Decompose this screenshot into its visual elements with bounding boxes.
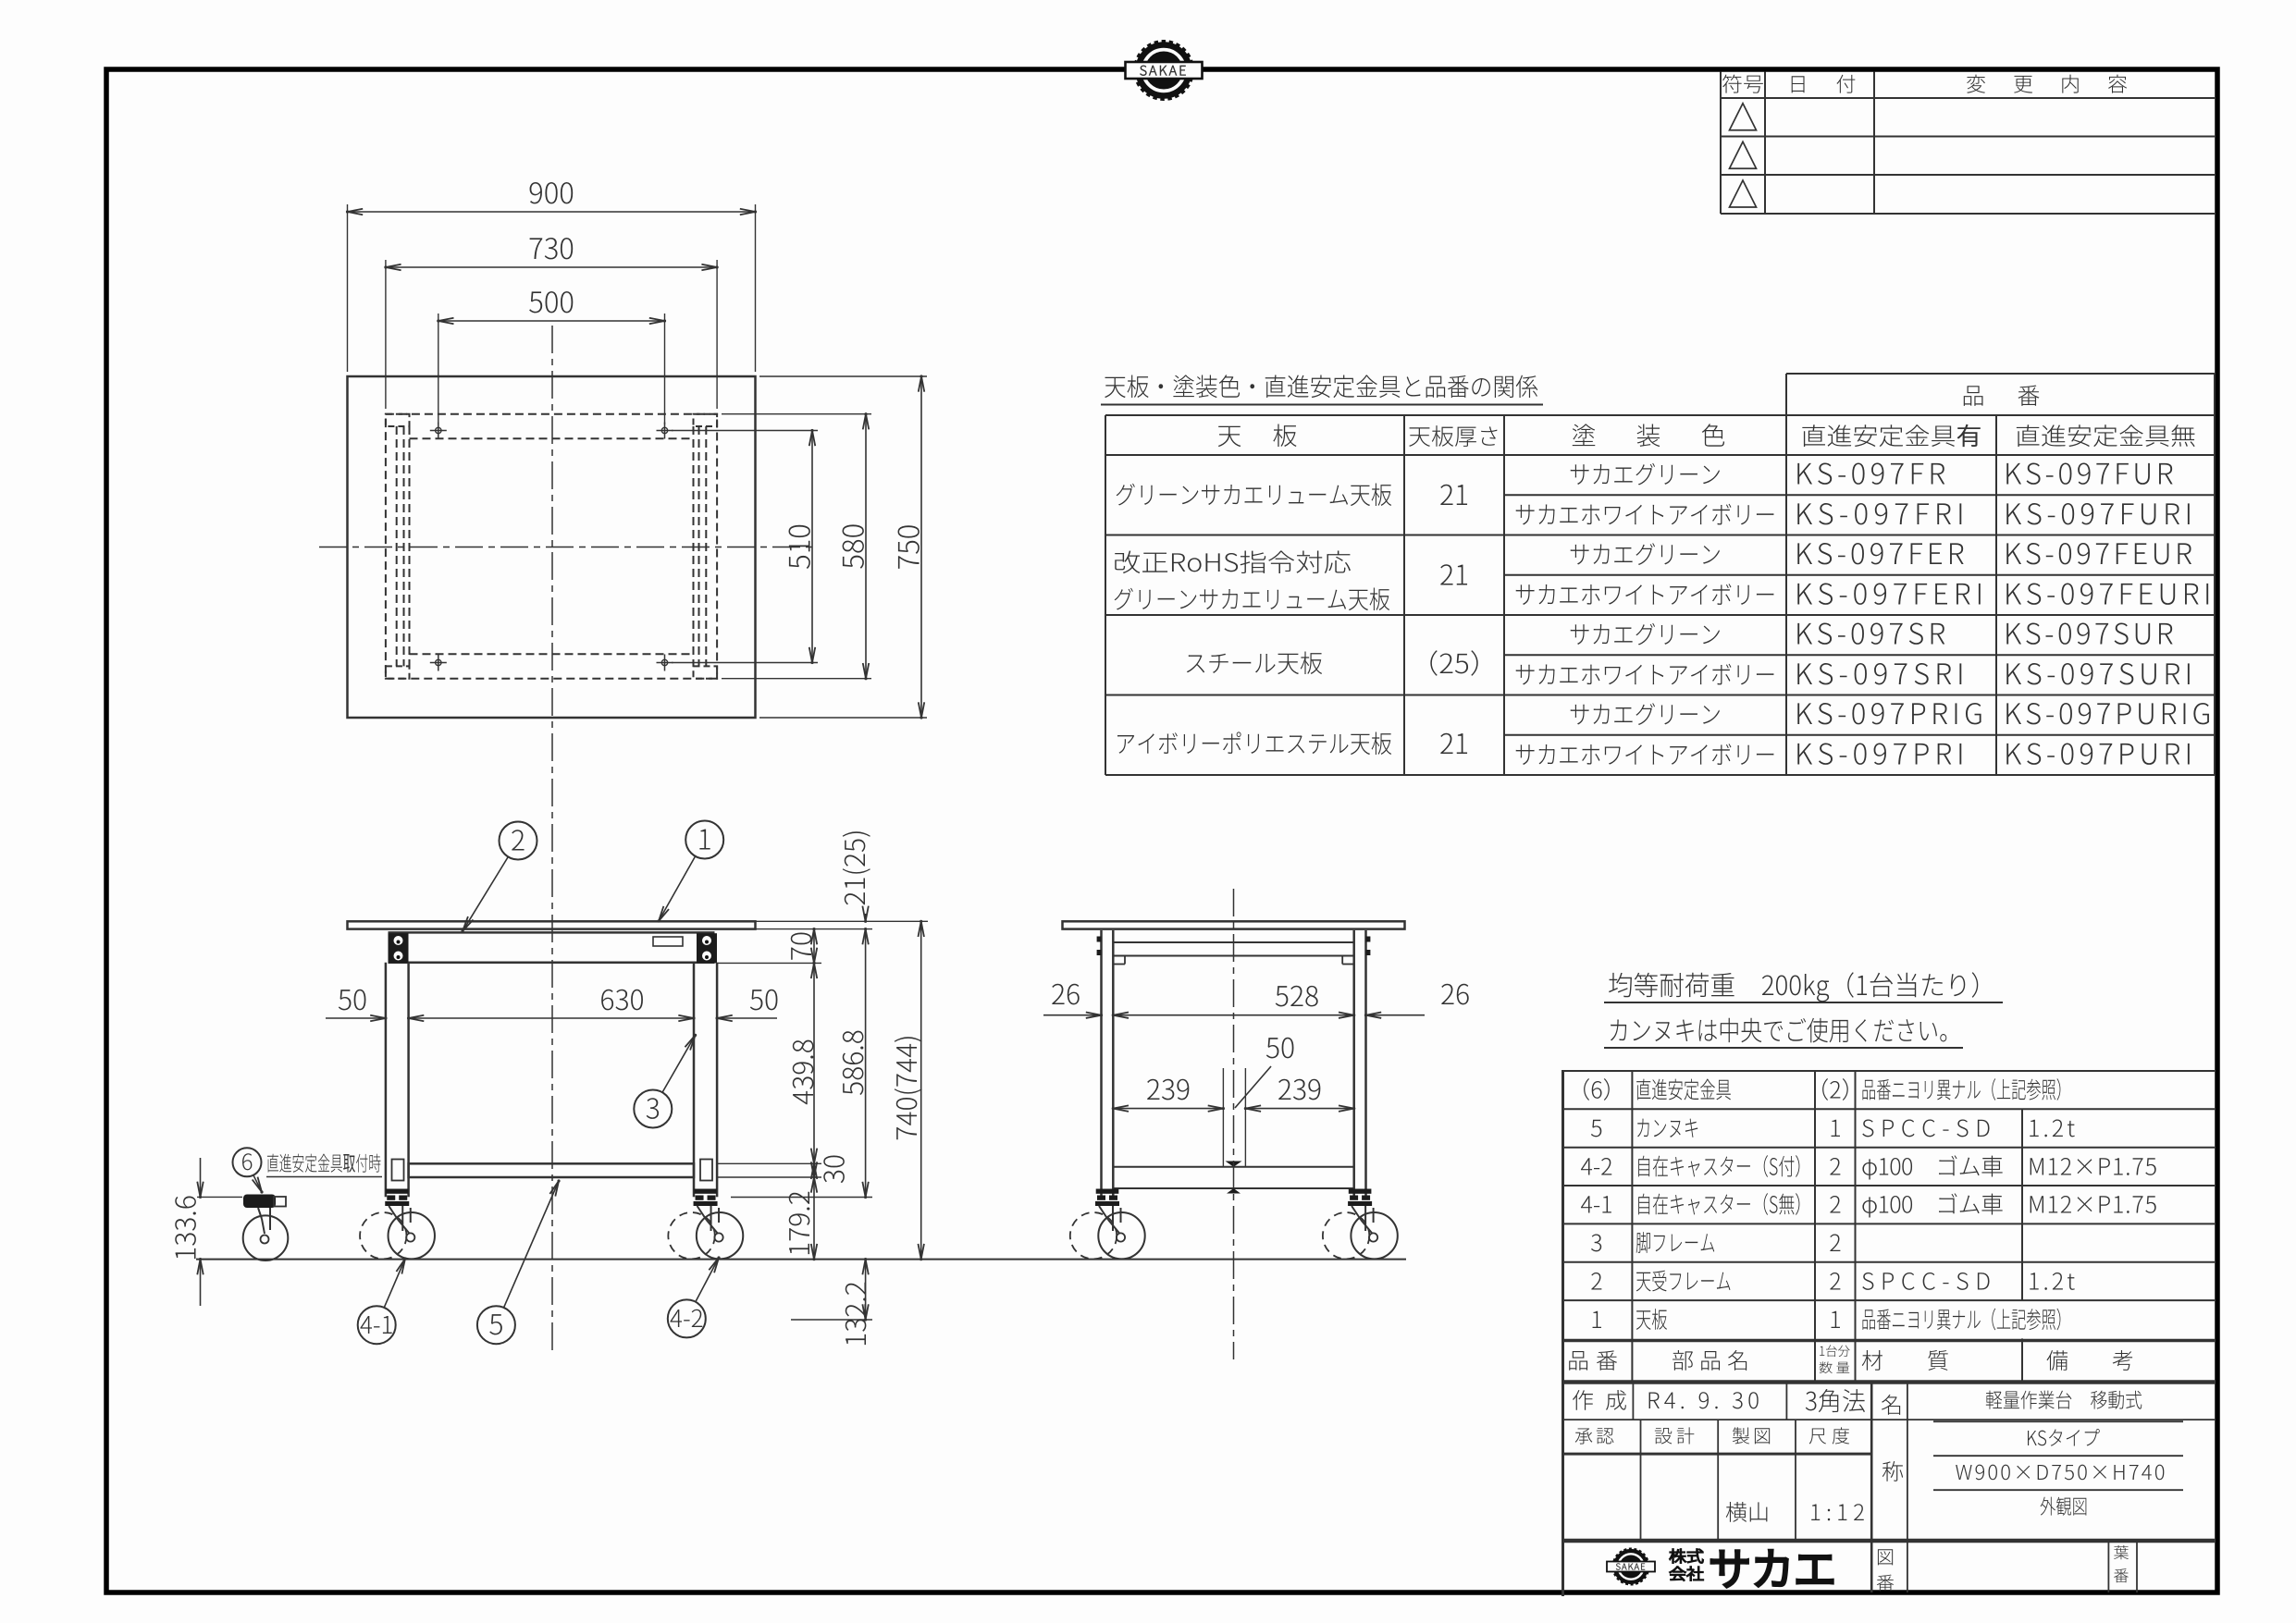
svg-text:26: 26 bbox=[1440, 972, 1470, 1013]
svg-text:70: 70 bbox=[779, 931, 820, 961]
svg-text:3: 3 bbox=[646, 1087, 660, 1127]
svg-text:カンヌキ: カンヌキ bbox=[1636, 1111, 1699, 1144]
svg-text:品: 品 bbox=[1961, 378, 1984, 412]
svg-text:部: 部 bbox=[1672, 1343, 1694, 1375]
svg-text:容: 容 bbox=[2107, 68, 2128, 98]
svg-text:1: 1 bbox=[697, 818, 712, 858]
svg-text:番: 番 bbox=[1596, 1343, 1618, 1375]
svg-text:自在キャスター（S無）: 自在キャスター（S無） bbox=[1636, 1187, 1811, 1221]
svg-text:アイボリーポリエステル天板: アイボリーポリエステル天板 bbox=[1115, 724, 1392, 760]
svg-text:KS-097SRI: KS-097SRI bbox=[1795, 651, 1965, 693]
svg-text:M12×P1.75: M12×P1.75 bbox=[2028, 1149, 2157, 1182]
svg-text:葉: 葉 bbox=[2114, 1540, 2129, 1563]
svg-text:21: 21 bbox=[1439, 473, 1469, 513]
svg-text:6: 6 bbox=[241, 1144, 253, 1176]
svg-text:軽量作業台 移動式: 軽量作業台 移動式 bbox=[1985, 1384, 2142, 1414]
svg-text:SAKAE: SAKAE bbox=[1140, 61, 1189, 80]
svg-text:21: 21 bbox=[1439, 721, 1469, 762]
svg-text:図: 図 bbox=[1753, 1421, 1771, 1448]
svg-text:4-1: 4-1 bbox=[360, 1307, 393, 1341]
svg-text:50: 50 bbox=[338, 977, 367, 1018]
svg-text:5: 5 bbox=[1590, 1111, 1602, 1144]
svg-text:1台分: 1台分 bbox=[1819, 1342, 1850, 1360]
svg-text:2: 2 bbox=[511, 818, 525, 859]
svg-text:2: 2 bbox=[1829, 1225, 1841, 1259]
svg-text:KS-097SUR: KS-097SUR bbox=[2004, 611, 2174, 653]
svg-text:脚フレーム: 脚フレーム bbox=[1636, 1225, 1716, 1259]
svg-text:塗: 塗 bbox=[1572, 416, 1597, 452]
svg-text:KS-097SR: KS-097SR bbox=[1795, 611, 1945, 653]
svg-text:天受フレーム: 天受フレーム bbox=[1636, 1263, 1732, 1297]
svg-text:グリーンサカエリューム天板: グリーンサカエリューム天板 bbox=[1115, 475, 1392, 511]
svg-text:名: 名 bbox=[1881, 1387, 1903, 1420]
svg-text:色: 色 bbox=[1701, 416, 1726, 452]
svg-text:（2）: （2） bbox=[1806, 1073, 1864, 1106]
svg-text:2: 2 bbox=[1829, 1187, 1841, 1221]
svg-text:1: 1 bbox=[1590, 1302, 1602, 1335]
svg-text:数 量: 数 量 bbox=[1819, 1359, 1850, 1377]
svg-text:直進安定金具取付時: 直進安定金具取付時 bbox=[266, 1148, 381, 1177]
svg-text:50: 50 bbox=[749, 977, 779, 1018]
svg-text:会社: 会社 bbox=[1669, 1561, 1704, 1584]
svg-text:備: 備 bbox=[2046, 1343, 2068, 1375]
svg-text:装: 装 bbox=[1636, 416, 1661, 452]
svg-text:サカエグリーン: サカエグリーン bbox=[1569, 535, 1722, 572]
svg-text:5: 5 bbox=[488, 1302, 503, 1343]
svg-text:21(25): 21(25) bbox=[833, 829, 873, 905]
svg-text:KS-097FER: KS-097FER bbox=[1795, 531, 1965, 572]
svg-text:サカエホワイトアイボリー: サカエホワイトアイボリー bbox=[1514, 575, 1776, 611]
svg-text:21: 21 bbox=[1439, 553, 1469, 594]
svg-text:（25）: （25） bbox=[1410, 643, 1499, 682]
svg-text:750: 750 bbox=[886, 524, 928, 571]
svg-text:132.2: 132.2 bbox=[833, 1281, 874, 1347]
svg-text:4-2: 4-2 bbox=[1580, 1149, 1612, 1182]
svg-text:50: 50 bbox=[1265, 1026, 1295, 1066]
svg-text:品: 品 bbox=[1699, 1343, 1722, 1375]
svg-text:直進安定金具無: 直進安定金具無 bbox=[2015, 418, 2196, 452]
svg-text:サカエホワイトアイボリー: サカエホワイトアイボリー bbox=[1514, 655, 1776, 691]
svg-text:製: 製 bbox=[1732, 1421, 1750, 1448]
svg-text:番: 番 bbox=[2017, 378, 2040, 412]
svg-text:横山: 横山 bbox=[1725, 1494, 1770, 1527]
svg-text:番: 番 bbox=[1876, 1568, 1895, 1595]
svg-text:サカエグリーン: サカエグリーン bbox=[1569, 615, 1722, 651]
svg-text:1:12: 1:12 bbox=[1809, 1494, 1865, 1527]
svg-text:580: 580 bbox=[831, 523, 872, 570]
svg-text:W900×D750×H740: W900×D750×H740 bbox=[1956, 1457, 2166, 1486]
svg-text:510: 510 bbox=[777, 523, 819, 570]
svg-text:自在キャスター（S付）: 自在キャスター（S付） bbox=[1636, 1149, 1811, 1182]
svg-text:変: 変 bbox=[1966, 68, 1986, 98]
svg-text:サカエグリーン: サカエグリーン bbox=[1569, 455, 1722, 491]
svg-text:30: 30 bbox=[812, 1154, 853, 1184]
svg-text:3角法: 3角法 bbox=[1805, 1381, 1866, 1418]
svg-text:図: 図 bbox=[1876, 1543, 1895, 1569]
svg-text:材: 材 bbox=[1861, 1343, 1883, 1375]
svg-text:KS-097PURI: KS-097PURI bbox=[2004, 731, 2192, 772]
svg-text:M12×P1.75: M12×P1.75 bbox=[2028, 1187, 2157, 1221]
svg-text:天: 天 bbox=[1217, 416, 1242, 452]
svg-text:1: 1 bbox=[1829, 1111, 1841, 1144]
svg-text:直進安定金具有: 直進安定金具有 bbox=[1801, 418, 1982, 452]
svg-text:スチール天板: スチール天板 bbox=[1184, 644, 1323, 680]
svg-text:名: 名 bbox=[1727, 1343, 1749, 1375]
svg-text:尺: 尺 bbox=[1808, 1421, 1827, 1448]
svg-text:KS-097PRIG: KS-097PRIG bbox=[1795, 691, 1983, 732]
svg-text:符号: 符号 bbox=[1722, 68, 1764, 98]
svg-text:4-2: 4-2 bbox=[670, 1300, 703, 1334]
svg-text:外観図: 外観図 bbox=[2040, 1491, 2088, 1520]
svg-text:500: 500 bbox=[528, 279, 574, 321]
svg-text:考: 考 bbox=[2112, 1343, 2134, 1375]
svg-text:26: 26 bbox=[1051, 972, 1080, 1013]
svg-text:KS-097FRI: KS-097FRI bbox=[1795, 491, 1965, 533]
svg-text:計: 計 bbox=[1676, 1421, 1695, 1448]
svg-text:R4. 9. 30: R4. 9. 30 bbox=[1647, 1383, 1759, 1415]
svg-text:改正RoHS指令対応: 改正RoHS指令対応 bbox=[1113, 543, 1352, 579]
svg-text:天板・塗装色・直進安定金具と品番の関係: 天板・塗装色・直進安定金具と品番の関係 bbox=[1104, 367, 1538, 403]
svg-text:更: 更 bbox=[2013, 68, 2033, 98]
svg-text:239: 239 bbox=[1278, 1067, 1322, 1108]
svg-text:φ100 ゴム車: φ100 ゴム車 bbox=[1861, 1149, 2004, 1182]
svg-text:KS-097FR: KS-097FR bbox=[1795, 451, 1945, 493]
svg-text:2: 2 bbox=[1829, 1149, 1841, 1182]
svg-text:900: 900 bbox=[528, 170, 574, 212]
svg-text:528: 528 bbox=[1275, 974, 1319, 1014]
svg-text:天板: 天板 bbox=[1636, 1302, 1668, 1335]
svg-text:（6）: （6） bbox=[1567, 1073, 1625, 1106]
svg-text:作: 作 bbox=[1572, 1383, 1594, 1415]
svg-text:133.6: 133.6 bbox=[164, 1195, 204, 1261]
svg-text:KS-097SURI: KS-097SURI bbox=[2004, 651, 2192, 693]
svg-text:カンヌキは中央でご使用ください。: カンヌキは中央でご使用ください。 bbox=[1608, 1010, 1961, 1049]
svg-text:サカエ: サカエ bbox=[1709, 1533, 1836, 1598]
svg-text:KS-097PURIG: KS-097PURIG bbox=[2004, 691, 2211, 732]
svg-text:内: 内 bbox=[2060, 68, 2080, 98]
svg-text:称: 称 bbox=[1882, 1454, 1904, 1486]
svg-text:サカエホワイトアイボリー: サカエホワイトアイボリー bbox=[1514, 495, 1776, 531]
svg-text:630: 630 bbox=[599, 977, 644, 1018]
svg-text:740(744): 740(744) bbox=[884, 1034, 925, 1140]
svg-text:直進安定金具: 直進安定金具 bbox=[1636, 1073, 1732, 1106]
svg-text:品番ニヨリ異ナル（上記参照）: 品番ニヨリ異ナル（上記参照） bbox=[1861, 1302, 2071, 1335]
svg-text:板: 板 bbox=[1273, 416, 1298, 452]
svg-text:番: 番 bbox=[2114, 1563, 2129, 1586]
svg-text:付: 付 bbox=[1835, 68, 1856, 98]
svg-text:439.8: 439.8 bbox=[781, 1039, 821, 1105]
svg-text:均等耐荷重 200kg（1台当たり）: 均等耐荷重 200kg（1台当たり） bbox=[1608, 965, 1996, 1003]
svg-text:239: 239 bbox=[1146, 1067, 1191, 1108]
svg-text:品番ニヨリ異ナル（上記参照）: 品番ニヨリ異ナル（上記参照） bbox=[1861, 1073, 2071, 1106]
svg-text:179.2: 179.2 bbox=[777, 1190, 818, 1257]
svg-text:サカエグリーン: サカエグリーン bbox=[1569, 695, 1722, 732]
svg-text:成: 成 bbox=[1605, 1383, 1627, 1415]
svg-text:2: 2 bbox=[1590, 1263, 1602, 1297]
svg-text:SAKAE: SAKAE bbox=[1615, 1560, 1646, 1573]
svg-text:3: 3 bbox=[1590, 1225, 1602, 1259]
svg-text:KS-097FUR: KS-097FUR bbox=[2004, 451, 2174, 493]
svg-text:品: 品 bbox=[1567, 1343, 1589, 1375]
svg-text:天板厚さ: 天板厚さ bbox=[1408, 419, 1500, 452]
svg-text:グリーンサカエリューム天板: グリーンサカエリューム天板 bbox=[1113, 580, 1390, 616]
svg-text:日: 日 bbox=[1787, 68, 1808, 98]
svg-text:KS-097FEUR: KS-097FEUR bbox=[2004, 531, 2192, 572]
svg-text:φ100 ゴム車: φ100 ゴム車 bbox=[1861, 1187, 2004, 1221]
svg-text:承: 承 bbox=[1574, 1421, 1593, 1448]
svg-text:度: 度 bbox=[1832, 1421, 1850, 1448]
svg-text:1.2t: 1.2t bbox=[2028, 1263, 2075, 1297]
svg-text:2: 2 bbox=[1829, 1263, 1841, 1297]
svg-text:1: 1 bbox=[1829, 1302, 1841, 1335]
svg-text:KS-097PRI: KS-097PRI bbox=[1795, 731, 1965, 772]
svg-text:認: 認 bbox=[1596, 1421, 1614, 1448]
svg-text:サカエホワイトアイボリー: サカエホワイトアイボリー bbox=[1514, 735, 1776, 771]
svg-text:4-1: 4-1 bbox=[1580, 1187, 1612, 1221]
svg-text:質: 質 bbox=[1927, 1343, 1949, 1375]
svg-text:KSタイプ: KSタイプ bbox=[2026, 1422, 2100, 1452]
svg-text:730: 730 bbox=[528, 226, 574, 267]
svg-text:1.2t: 1.2t bbox=[2028, 1111, 2075, 1144]
svg-text:586.8: 586.8 bbox=[831, 1029, 871, 1096]
svg-text:設: 設 bbox=[1654, 1421, 1673, 1448]
